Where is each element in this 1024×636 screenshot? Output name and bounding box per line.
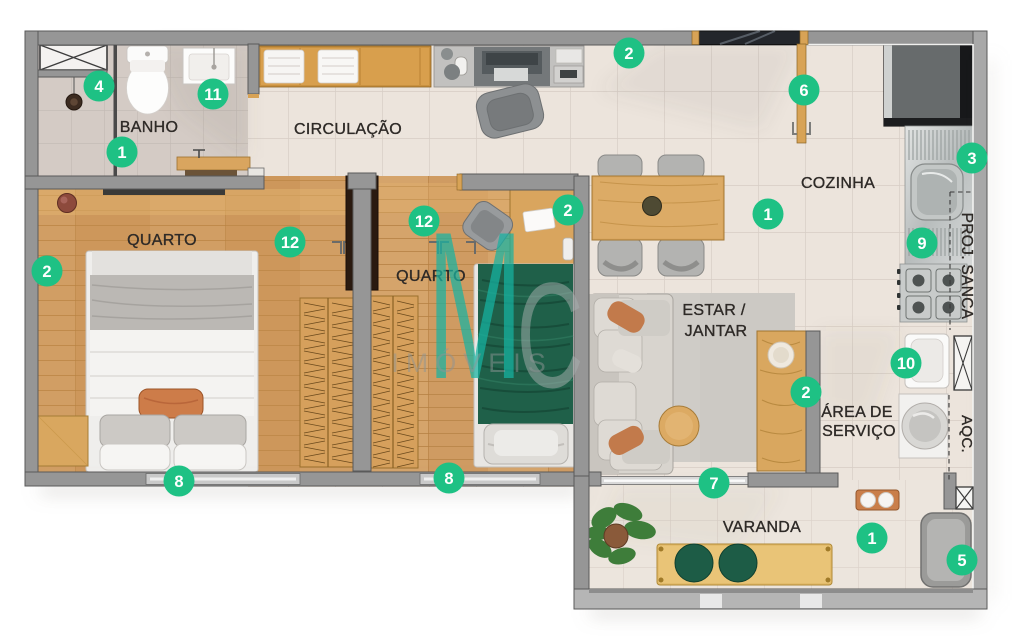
svg-text:1: 1 <box>867 530 876 548</box>
svg-text:7: 7 <box>709 475 718 493</box>
svg-text:5: 5 <box>957 552 966 570</box>
svg-text:ESTAR /: ESTAR / <box>682 302 745 319</box>
svg-text:AQC.: AQC. <box>958 415 975 453</box>
svg-text:CIRCULAÇÃO: CIRCULAÇÃO <box>294 118 402 138</box>
svg-text:3: 3 <box>967 150 976 168</box>
svg-text:COZINHA: COZINHA <box>801 175 875 192</box>
svg-text:9: 9 <box>917 235 926 253</box>
svg-text:ÁREA DE: ÁREA DE <box>821 402 892 421</box>
svg-text:PROJ. SANCA: PROJ. SANCA <box>958 213 975 320</box>
svg-text:JANTAR: JANTAR <box>685 323 748 340</box>
svg-text:1: 1 <box>763 206 772 224</box>
svg-text:BANHO: BANHO <box>120 119 178 136</box>
svg-text:10: 10 <box>897 355 915 373</box>
svg-text:2: 2 <box>624 45 633 63</box>
svg-text:QUARTO: QUARTO <box>127 232 197 249</box>
svg-text:SERVIÇO: SERVIÇO <box>822 423 896 440</box>
svg-text:VARANDA: VARANDA <box>723 519 801 536</box>
svg-text:2: 2 <box>42 263 51 281</box>
svg-text:1: 1 <box>117 144 126 162</box>
svg-text:11: 11 <box>204 86 221 104</box>
svg-text:4: 4 <box>94 78 104 96</box>
svg-text:C: C <box>516 252 583 419</box>
svg-text:8: 8 <box>444 470 453 488</box>
svg-text:IMÓVEIS: IMÓVEIS <box>391 347 553 378</box>
svg-text:2: 2 <box>563 202 572 220</box>
svg-text:M: M <box>427 188 523 422</box>
svg-text:12: 12 <box>281 234 299 252</box>
svg-text:2: 2 <box>801 384 810 402</box>
svg-text:6: 6 <box>799 82 808 100</box>
svg-text:8: 8 <box>174 473 183 491</box>
svg-text:12: 12 <box>415 213 433 231</box>
